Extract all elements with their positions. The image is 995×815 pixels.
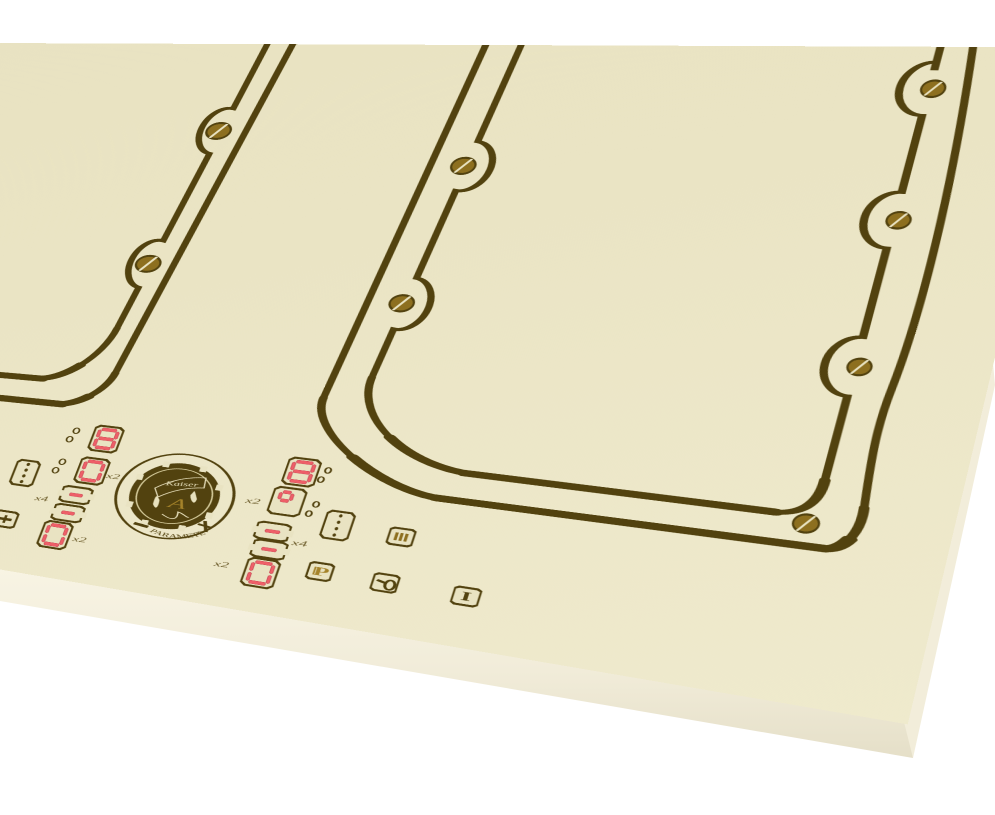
svg-text:x2: x2 bbox=[103, 471, 121, 481]
svg-text:x2: x2 bbox=[242, 495, 261, 506]
svg-text:x4: x4 bbox=[32, 493, 50, 503]
